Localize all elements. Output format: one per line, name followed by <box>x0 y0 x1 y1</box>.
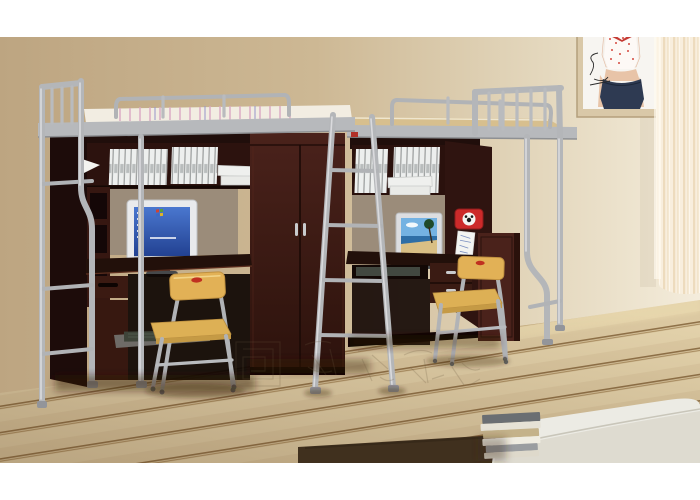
left-loft-unit <box>37 81 358 408</box>
red-sticker <box>351 132 358 137</box>
chair-right-backrest <box>458 256 505 280</box>
curtain-light-edge <box>654 37 661 279</box>
drawer-handle <box>98 283 118 287</box>
curtain <box>654 37 700 294</box>
photograph <box>0 37 700 463</box>
chair-left-backrest <box>169 272 225 301</box>
right-keyboard <box>356 267 420 276</box>
scene-svg <box>0 37 700 463</box>
wardrobe-handle-left <box>295 223 298 236</box>
cartoon-clock <box>455 209 483 229</box>
wardrobe-handle-right <box>303 223 306 236</box>
photo-canvas <box>0 0 700 500</box>
poster <box>577 37 662 117</box>
